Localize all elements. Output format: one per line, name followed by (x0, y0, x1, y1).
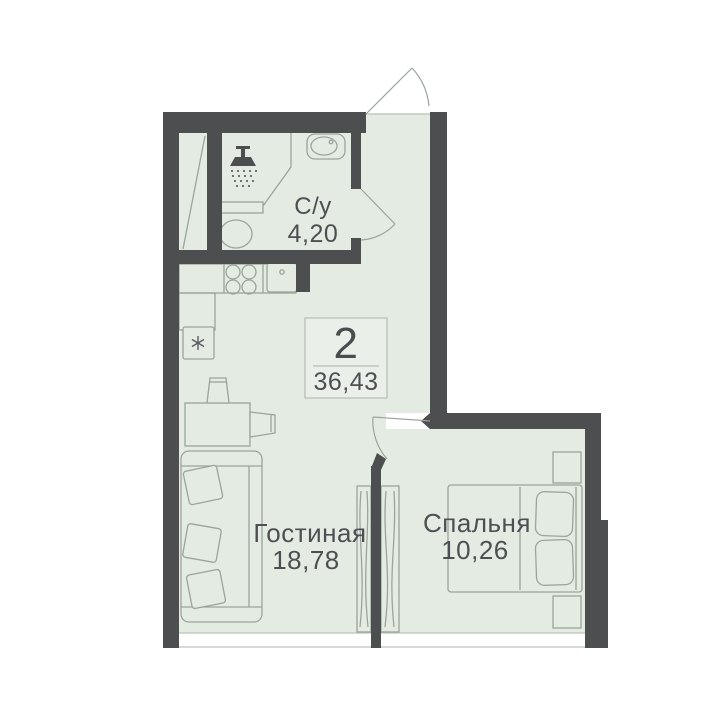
fridge-icon (183, 327, 214, 359)
bedroom-area: 10,26 (441, 535, 509, 565)
wall-partition (371, 466, 381, 648)
wall-top (163, 112, 366, 133)
wall-kitchen-niche (296, 264, 310, 292)
pillow (182, 523, 221, 562)
wall-bath-bottom (179, 250, 361, 264)
bathroom-area: 4,20 (288, 220, 339, 248)
living-room-area: 18,78 (272, 545, 340, 575)
wall-bedroom-right-upper (585, 413, 601, 520)
wall-left (163, 112, 179, 648)
total-area: 36,43 (313, 368, 378, 396)
living-room-label: Гостиная (253, 518, 366, 548)
wall-closet-divider (207, 132, 222, 250)
wall-bedroom-top (430, 413, 601, 429)
window-band (176, 633, 601, 647)
floorplan-svg: 2 36,43 С/у 4,20 Гостиная 18,78 Спальня … (0, 0, 726, 726)
wall-hall-right (430, 112, 447, 413)
summary-box: 2 36,43 (305, 318, 387, 398)
entry-door (366, 68, 430, 114)
floorplan-page: 2 36,43 С/у 4,20 Гостиная 18,78 Спальня … (0, 0, 726, 726)
bedroom-label: Спальня (423, 508, 531, 538)
bathroom-label: С/у (294, 193, 332, 220)
pillow (535, 539, 574, 585)
kitchen-sink-icon (267, 263, 297, 292)
wall-bedroom-right-lower (585, 520, 608, 648)
wall-bath-right-lower (351, 238, 361, 250)
pillow (183, 465, 223, 505)
pillow (186, 569, 226, 609)
wall-bath-right-upper (351, 132, 361, 189)
pillow (535, 491, 574, 536)
rooms-count: 2 (334, 319, 359, 368)
